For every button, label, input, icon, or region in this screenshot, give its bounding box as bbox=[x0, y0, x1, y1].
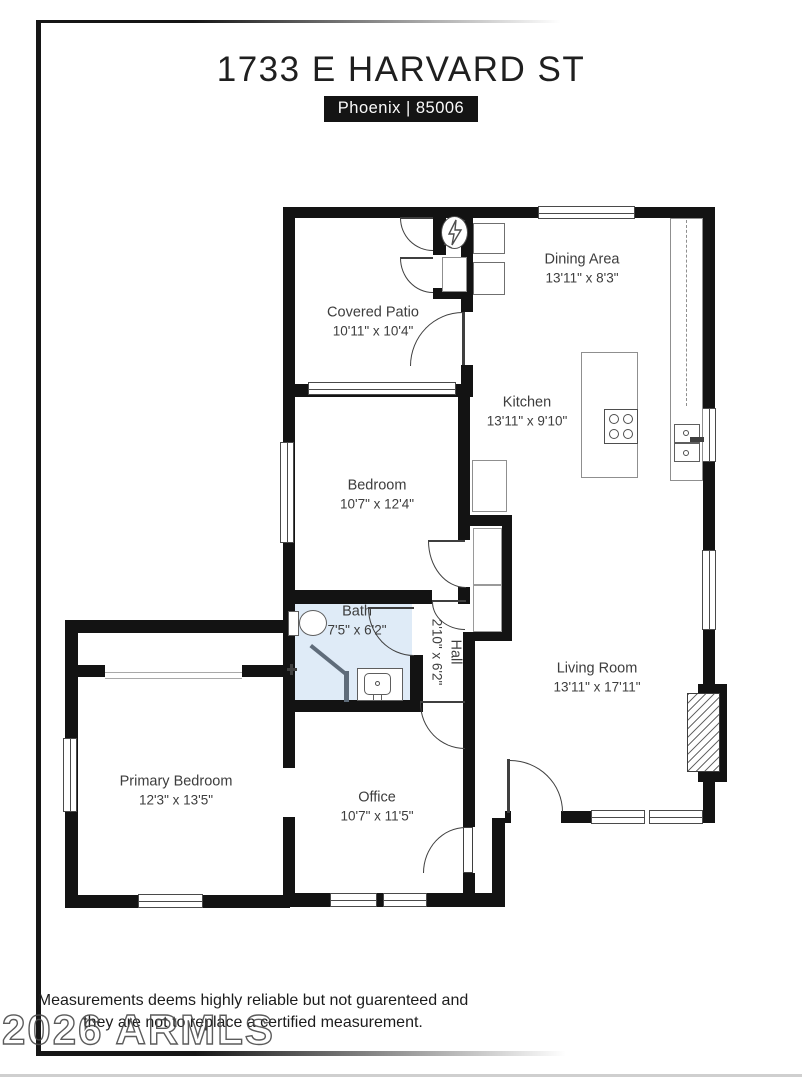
window bbox=[330, 893, 377, 907]
faucet-icon bbox=[690, 437, 704, 442]
room-label-living-room: Living Room 13'11" x 17'11" bbox=[553, 661, 640, 696]
wall bbox=[463, 632, 475, 712]
wall bbox=[703, 780, 715, 823]
wall bbox=[283, 207, 295, 397]
stove-burner bbox=[609, 414, 619, 424]
window bbox=[538, 206, 635, 219]
wall bbox=[703, 207, 715, 408]
room-label-bedroom: Bedroom 10'7" x 12'4" bbox=[340, 478, 414, 513]
closet-wall bbox=[242, 665, 283, 677]
door-leaf bbox=[462, 312, 465, 365]
sink-drain bbox=[683, 450, 689, 456]
door-arc bbox=[400, 258, 433, 293]
door-arc bbox=[428, 541, 466, 588]
wall bbox=[283, 385, 295, 712]
door-arc bbox=[420, 703, 465, 749]
door-arc bbox=[423, 827, 466, 873]
closet-shelf bbox=[473, 585, 502, 632]
window bbox=[702, 408, 716, 462]
closet-shelf bbox=[473, 528, 502, 585]
sink-drain bbox=[375, 681, 380, 686]
wall bbox=[283, 712, 295, 768]
stove-burner bbox=[623, 414, 633, 424]
fridge-icon bbox=[472, 460, 507, 512]
room-label-bath: Bath 7'5" x 6'2" bbox=[327, 604, 386, 639]
shower-head-icon bbox=[290, 664, 293, 675]
floor-plan-canvas: Covered Patio 10'11" x 10'4" Dining Area… bbox=[0, 0, 802, 1080]
wall bbox=[65, 620, 283, 633]
window bbox=[591, 810, 645, 824]
wall bbox=[283, 817, 295, 897]
room-label-office: Office 10'7" x 11'5" bbox=[340, 790, 413, 825]
toilet-icon bbox=[288, 611, 299, 636]
room-label-hall: Hall 2'10" x 6'2" bbox=[429, 619, 464, 686]
shower-wall bbox=[344, 671, 349, 702]
vanity-faucet bbox=[373, 694, 382, 701]
dryer-icon bbox=[473, 262, 505, 295]
door-leaf bbox=[463, 827, 473, 873]
armls-watermark: 2026 ARMLS bbox=[2, 1006, 275, 1054]
wall bbox=[502, 518, 512, 640]
closet-rod bbox=[105, 672, 242, 679]
window bbox=[138, 894, 203, 908]
wall bbox=[492, 818, 505, 907]
wall bbox=[458, 385, 470, 540]
window bbox=[63, 738, 77, 812]
wall bbox=[283, 590, 432, 604]
door-arc bbox=[510, 760, 563, 812]
storage-shelf bbox=[442, 257, 467, 292]
room-label-primary-bedroom: Primary Bedroom 12'3" x 13'5" bbox=[120, 774, 233, 809]
wall bbox=[465, 632, 512, 641]
water-heater-icon bbox=[441, 216, 468, 249]
window bbox=[649, 810, 703, 824]
room-label-dining-area: Dining Area 13'11" x 8'3" bbox=[545, 252, 620, 287]
wall bbox=[703, 462, 715, 550]
wall bbox=[283, 700, 420, 712]
wall bbox=[561, 811, 591, 823]
upper-cabinet-line bbox=[686, 220, 688, 406]
room-label-kitchen: Kitchen 13'11" x 9'10" bbox=[487, 395, 568, 430]
door-arc bbox=[400, 218, 433, 251]
window bbox=[702, 550, 716, 630]
washer-icon bbox=[473, 223, 505, 254]
stove-icon bbox=[604, 409, 638, 444]
stove-burner bbox=[609, 429, 619, 439]
stove-burner bbox=[623, 429, 633, 439]
wall bbox=[467, 515, 512, 526]
window bbox=[280, 442, 294, 543]
wall bbox=[703, 630, 715, 687]
wall bbox=[283, 207, 715, 218]
wall bbox=[463, 873, 475, 895]
fireplace-icon bbox=[687, 693, 720, 772]
floor-plan-page: { "header": { "title": "1733 E HARVARD S… bbox=[0, 0, 802, 1080]
room-label-covered-patio: Covered Patio 10'11" x 10'4" bbox=[327, 305, 419, 340]
window bbox=[383, 893, 427, 907]
window bbox=[308, 382, 456, 395]
closet-wall bbox=[78, 665, 105, 677]
toilet-bowl bbox=[299, 610, 327, 636]
sink-drain bbox=[683, 430, 689, 436]
